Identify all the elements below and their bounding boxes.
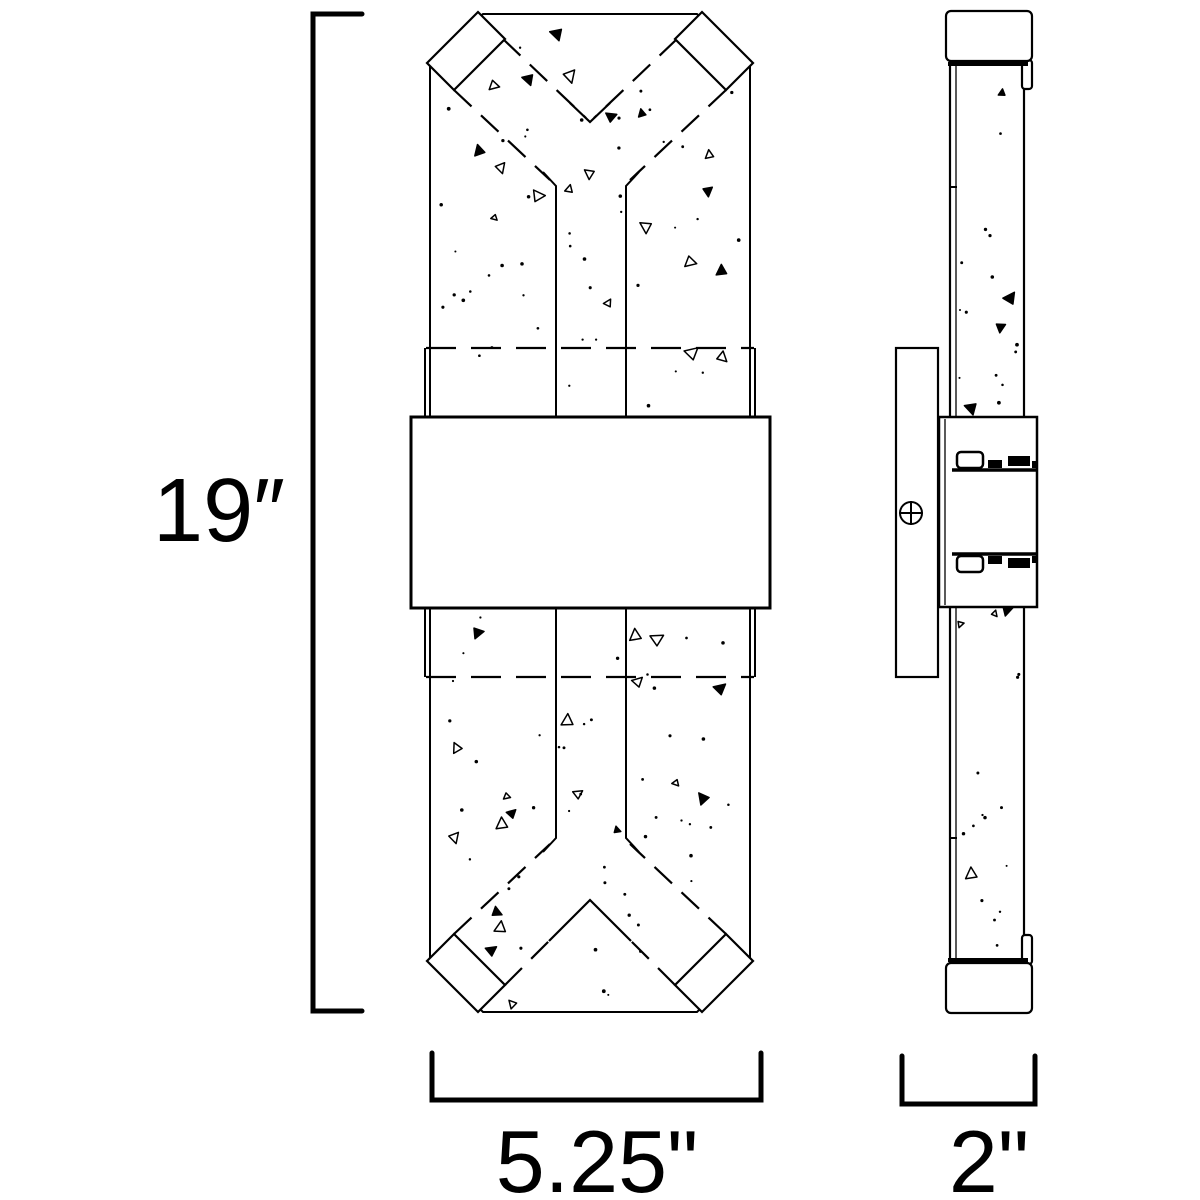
- speckle-triangle: [496, 817, 508, 829]
- speckle-dot: [581, 338, 583, 340]
- depth-dimension-label: 2": [949, 1112, 1029, 1200]
- speckle-dot: [524, 135, 526, 137]
- speckle-triangle: [522, 75, 533, 86]
- width-dimension-bracket: [432, 1053, 761, 1100]
- speckle-dot: [996, 944, 999, 947]
- speckle-dot: [628, 914, 631, 917]
- depth-dimension-bracket: [902, 1056, 1035, 1104]
- speckle-dot: [461, 298, 465, 302]
- speckle-triangle: [716, 264, 726, 275]
- speckle-dot: [441, 306, 444, 309]
- speckle-triangle: [485, 947, 496, 956]
- speckle-dot: [619, 194, 623, 198]
- speckle-dot: [721, 641, 725, 645]
- speckle-dot: [685, 637, 688, 640]
- speckle-dot: [737, 238, 741, 242]
- speckle-dot: [1000, 806, 1003, 809]
- speckle-dot: [602, 989, 606, 993]
- sconce-dimension-drawing: 19″ 5.25" 2": [0, 0, 1200, 1200]
- speckle-dot: [478, 354, 481, 357]
- speckle-triangle: [550, 29, 562, 40]
- speckle-dot: [448, 719, 451, 722]
- speckle-triangle: [630, 628, 642, 640]
- speckle-dot: [709, 826, 712, 829]
- speckle-triangle: [614, 826, 621, 832]
- speckle-triangle: [717, 351, 727, 362]
- speckle-dot: [668, 734, 671, 737]
- speckle-dot: [595, 338, 597, 340]
- speckle-dot: [452, 680, 454, 682]
- speckle-dot: [580, 118, 584, 122]
- speckle-dot: [727, 804, 730, 807]
- speckle-dot: [569, 245, 572, 248]
- speckle-dot: [988, 234, 991, 237]
- speckle-triangle: [705, 150, 713, 159]
- speckle-dot: [568, 810, 570, 812]
- speckle-dot: [689, 823, 691, 825]
- speckle-triangle: [672, 780, 679, 786]
- speckle-dot: [603, 866, 606, 869]
- speckle-dot: [702, 372, 704, 374]
- speckle-dot: [690, 880, 692, 882]
- speckle-dot: [475, 760, 479, 764]
- width-dimension-label: 5.25": [496, 1112, 699, 1200]
- spec-sheet-page: 19″ 5.25" 2": [0, 0, 1200, 1200]
- speckle-dot: [983, 816, 987, 820]
- speckle-triangle: [603, 299, 610, 307]
- speckle-triangle: [685, 256, 697, 267]
- speckle-triangle: [492, 906, 502, 915]
- speckle-dot: [681, 145, 684, 148]
- speckle-dot: [984, 228, 987, 231]
- speckle-dot: [962, 832, 965, 835]
- speckle-dot: [460, 808, 464, 812]
- speckle-dot: [507, 887, 510, 890]
- speckle-dot: [702, 737, 706, 741]
- speckle-triangle: [563, 70, 574, 83]
- speckle-dot: [655, 816, 658, 819]
- speckle-dot: [637, 924, 640, 927]
- speckle-triangle: [561, 714, 573, 725]
- side-view: [896, 11, 1037, 1013]
- speckle-dot: [594, 948, 598, 952]
- corner-cap-bottom-right: [675, 934, 753, 1012]
- speckle-dot: [617, 117, 620, 120]
- height-dimension-bracket: [313, 14, 362, 1011]
- speckle-dot: [646, 673, 649, 676]
- center-band: [411, 417, 770, 608]
- speckle-dot: [636, 284, 639, 287]
- speckle-dot: [1015, 343, 1019, 347]
- speckle-dot: [981, 814, 983, 816]
- speckle-dot: [469, 858, 471, 860]
- speckle-dot: [1014, 350, 1017, 353]
- speckle-dot: [959, 309, 961, 311]
- speckle-dot: [439, 203, 443, 207]
- speckle-dot: [623, 893, 626, 896]
- speckle-triangle: [650, 635, 664, 646]
- speckle-dot: [500, 264, 504, 268]
- speckle-triangle: [632, 677, 643, 687]
- speckle-triangle: [494, 921, 505, 932]
- speckle-dot: [1016, 676, 1019, 679]
- side-center-block: [939, 417, 1037, 607]
- speckle-triangle: [504, 793, 511, 799]
- speckle-dot: [532, 806, 535, 809]
- speckle-dot: [674, 227, 676, 229]
- speckle-dot: [519, 47, 521, 49]
- speckle-triangle: [454, 743, 462, 754]
- speckle-dot: [1001, 384, 1004, 387]
- speckle-dot: [639, 90, 642, 93]
- speckle-triangle: [565, 185, 573, 193]
- speckle-dot: [537, 327, 540, 330]
- speckle-dot: [980, 899, 983, 902]
- speckle-dot: [603, 881, 606, 884]
- speckle-triangle: [509, 1000, 517, 1009]
- speckle-dot: [647, 404, 651, 408]
- speckle-dot: [519, 947, 522, 950]
- speckle-triangle: [489, 80, 499, 89]
- speckle-dot: [653, 686, 657, 690]
- speckle-triangle: [506, 810, 515, 819]
- speckle-dot: [568, 385, 570, 387]
- speckle-dot: [663, 141, 665, 143]
- speckle-dot: [991, 275, 995, 279]
- speckle-dot: [447, 107, 451, 111]
- speckle-triangle: [449, 832, 459, 843]
- speckle-dot: [976, 772, 979, 775]
- speckle-dot: [527, 195, 531, 199]
- speckle-dot: [620, 211, 622, 213]
- speckle-dot: [997, 401, 1001, 405]
- speckle-triangle: [573, 791, 583, 799]
- screw-icon: [899, 501, 923, 525]
- speckle-dot: [641, 778, 644, 781]
- speckle-dot: [558, 746, 561, 749]
- speckle-dot: [589, 286, 592, 289]
- speckle-triangle: [585, 170, 595, 180]
- speckle-triangle: [534, 190, 546, 202]
- speckle-triangle: [495, 163, 504, 174]
- corner-cap-top-right: [675, 12, 753, 90]
- glass-texture-bottom: [448, 616, 729, 1009]
- speckle-dot: [696, 218, 698, 220]
- corner-cap-bottom-left: [427, 934, 505, 1012]
- speckle-dot: [644, 835, 647, 838]
- glass-texture-top: [439, 29, 740, 408]
- speckle-dot: [520, 262, 524, 266]
- speckle-dot: [999, 132, 1002, 135]
- speckle-dot: [454, 250, 456, 252]
- speckle-triangle: [684, 348, 698, 360]
- speckle-dot: [960, 261, 963, 264]
- speckle-dot: [689, 854, 693, 858]
- speckle-triangle: [474, 628, 484, 639]
- speckle-dot: [965, 311, 968, 314]
- speckle-triangle: [640, 223, 651, 234]
- speckle-dot: [1017, 673, 1020, 676]
- speckle-dot: [616, 657, 619, 660]
- speckle-dot: [999, 911, 1001, 913]
- speckle-dot: [607, 994, 609, 996]
- speckle-dot: [526, 129, 529, 132]
- speckle-dot: [649, 108, 652, 111]
- speckle-triangle: [699, 793, 709, 805]
- speckle-triangle: [713, 684, 725, 695]
- speckle-dot: [993, 919, 996, 922]
- corner-cap-top-left: [427, 12, 505, 90]
- speckle-dot: [730, 91, 733, 94]
- speckle-dot: [590, 718, 593, 721]
- speckle-dot: [680, 819, 682, 821]
- speckle-dot: [617, 146, 620, 149]
- speckle-dot: [583, 257, 587, 261]
- speckle-dot: [675, 370, 677, 372]
- speckle-dot: [568, 232, 571, 235]
- speckle-triangle: [475, 145, 485, 156]
- speckle-triangle: [491, 215, 497, 221]
- speckle-dot: [972, 825, 975, 828]
- speckle-triangle: [703, 187, 712, 197]
- speckle-dot: [563, 746, 566, 749]
- speckle-dot: [488, 274, 491, 277]
- speckle-triangle: [606, 113, 617, 122]
- height-dimension-label: 19″: [153, 461, 285, 561]
- speckle-dot: [583, 723, 585, 725]
- speckle-dot: [479, 616, 481, 618]
- speckle-dot: [453, 293, 456, 296]
- speckle-dot: [538, 734, 540, 736]
- speckle-dot: [522, 294, 524, 296]
- speckle-triangle: [639, 109, 646, 117]
- speckle-dot: [995, 374, 998, 377]
- speckle-dot: [469, 290, 472, 293]
- speckle-dot: [462, 652, 464, 654]
- speckle-dot: [1006, 865, 1008, 867]
- speckle-dot: [501, 139, 504, 142]
- speckle-dot: [958, 377, 960, 379]
- front-view: [411, 12, 770, 1012]
